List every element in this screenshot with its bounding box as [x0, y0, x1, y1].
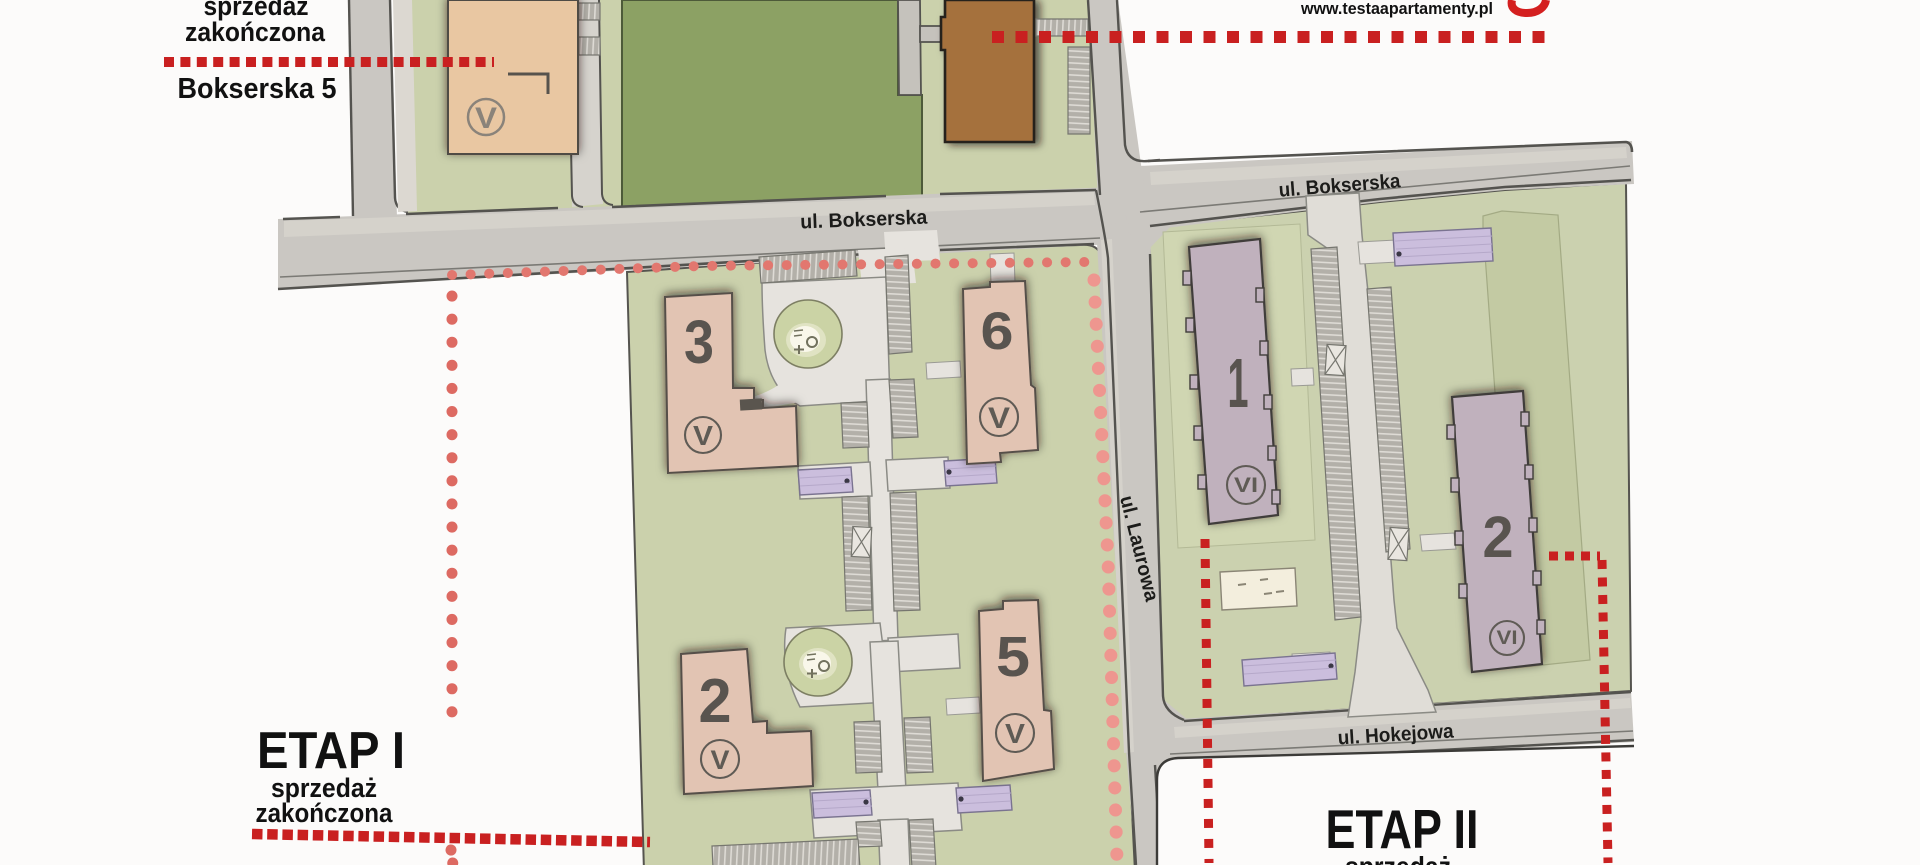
svg-text:Bokserska 5: Bokserska 5	[178, 73, 337, 105]
svg-text:VI: VI	[1497, 628, 1518, 649]
svg-text:ETAP I: ETAP I	[257, 722, 405, 780]
svg-text:VI: VI	[1234, 474, 1258, 497]
svg-text:V: V	[1005, 718, 1025, 749]
svg-text:V: V	[988, 402, 1010, 435]
svg-text:2: 2	[699, 667, 732, 736]
svg-text:1: 1	[1228, 344, 1249, 422]
svg-text:2: 2	[1483, 505, 1514, 570]
svg-text:V: V	[693, 420, 713, 451]
svg-text:5: 5	[996, 625, 1030, 689]
svg-text:www.testaapartamenty.pl: www.testaapartamenty.pl	[1300, 0, 1493, 18]
svg-text:sprzedaż: sprzedaż	[1345, 851, 1451, 865]
svg-text:6: 6	[981, 302, 1014, 361]
svg-text:zakończona: zakończona	[256, 798, 394, 828]
svg-text:3: 3	[684, 308, 714, 376]
svg-text:V: V	[475, 102, 497, 135]
svg-text:zakończona: zakończona	[185, 17, 326, 47]
svg-text:V: V	[711, 745, 730, 775]
